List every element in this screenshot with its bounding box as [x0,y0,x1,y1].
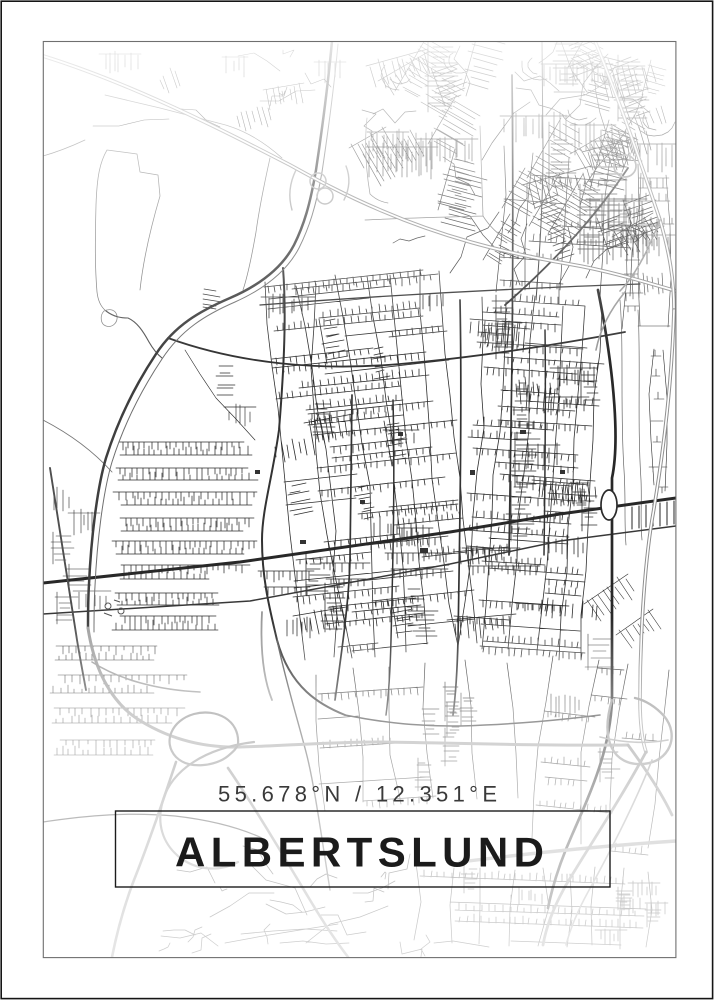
svg-text:ALBERTSLUND: ALBERTSLUND [175,829,544,876]
